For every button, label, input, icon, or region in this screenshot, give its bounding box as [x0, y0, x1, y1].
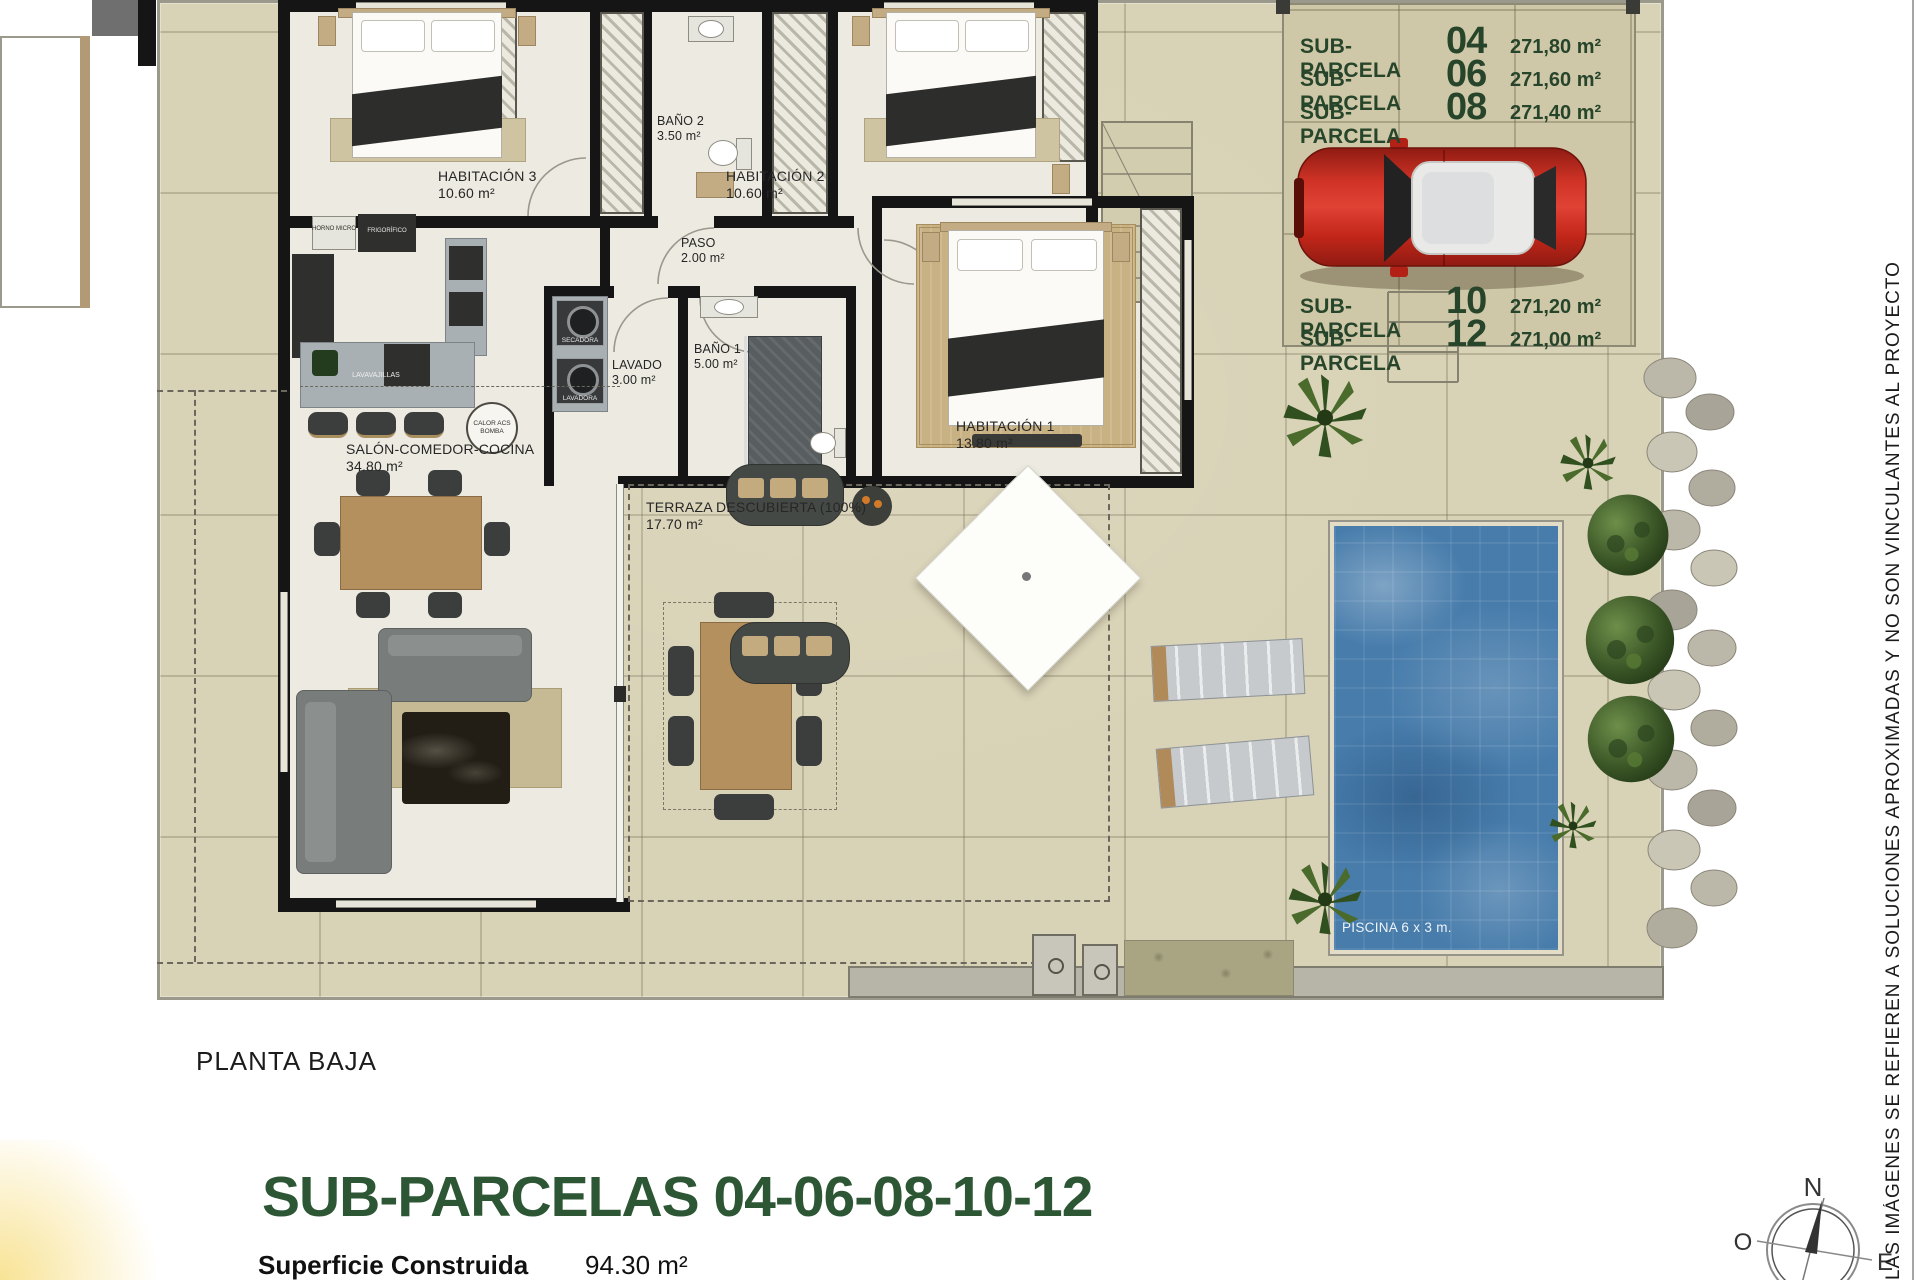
kitchen-sink: [449, 246, 483, 280]
page-title: SUB-PARCELAS 04-06-08-10-12: [262, 1164, 1092, 1230]
bar-stool: [404, 412, 444, 438]
bar-stool: [356, 412, 396, 438]
subparcela-list-top: SUB-PARCELA 04 271,80 m² SUB-PARCELA 06 …: [1300, 20, 1601, 119]
disclaimer-text: LAS IMÁGENES SE REFIEREN A SOLUCIONES AP…: [1874, 0, 1914, 1280]
nightstand: [1052, 164, 1070, 194]
outdoor-chair: [668, 646, 694, 696]
fridge-label: FRIGORÍFICO: [358, 228, 416, 235]
cushion: [806, 636, 832, 656]
washer-label: LAVADORA: [556, 395, 604, 402]
compass-north-label: N: [1804, 1172, 1823, 1202]
compass-west-label: O: [1734, 1229, 1753, 1256]
cushion: [770, 478, 796, 498]
bed-habitacion1: [948, 230, 1104, 426]
room-area: 34.80 m²: [346, 458, 534, 475]
subparcela-row: SUB-PARCELA 04 271,80 m²: [1300, 20, 1601, 53]
coffee-table: [402, 712, 510, 804]
nightstand: [318, 16, 336, 46]
tree: [1584, 491, 1672, 579]
grass-tuft: [1283, 856, 1367, 940]
cooktop: [384, 344, 430, 386]
bar-stool: [308, 412, 348, 438]
dining-chair: [314, 522, 340, 556]
room-label-paso: PASO 2.00 m²: [681, 236, 725, 266]
room-name: LAVADO: [612, 358, 662, 373]
shower-glass: [744, 336, 747, 472]
subparcela-label: SUB-PARCELA: [1300, 101, 1442, 149]
nightstand: [922, 232, 940, 262]
subparcela-row: SUB-PARCELA 10 271,20 m²: [1300, 280, 1601, 313]
room-area: 10.60 m²: [726, 185, 825, 202]
bathroom2-basin: [698, 20, 724, 38]
island-plant: [312, 350, 338, 376]
sun-lounger: [1151, 638, 1306, 702]
dining-chair: [356, 592, 390, 618]
utility-box: [1082, 944, 1118, 996]
car: [1292, 126, 1592, 294]
outdoor-chair: [668, 716, 694, 766]
tree: [1584, 692, 1678, 786]
subparcela-area: 271,00 m²: [1510, 329, 1601, 352]
room-name: HABITACIÓN 1: [956, 418, 1055, 435]
subparcela-area: 271,80 m²: [1510, 36, 1601, 59]
parcel-dash: [157, 390, 287, 392]
kitchen-zone-dash: [300, 386, 620, 387]
room-area: 10.60 m²: [438, 185, 537, 202]
room-name: SALÓN-COMEDOR-COCINA: [346, 441, 534, 458]
parasol-pole: [1022, 572, 1031, 581]
nightstand: [852, 16, 870, 46]
bathroom1-basin: [714, 299, 744, 315]
room-label-salon: SALÓN-COMEDOR-COCINA 34.80 m²: [346, 441, 534, 475]
toilet-tank: [736, 138, 752, 170]
room-name: BAÑO 1: [694, 342, 741, 357]
room-label-lavado: LAVADO 3.00 m²: [612, 358, 662, 388]
drink: [874, 500, 882, 508]
room-label-habitacion3: HABITACIÓN 3 10.60 m²: [438, 168, 537, 202]
dining-chair: [428, 592, 462, 618]
toilet-bowl: [810, 432, 836, 454]
room-area: 3.00 m²: [612, 373, 662, 388]
room-label-terraza: TERRAZA DESCUBIERTA (100%) 17.70 m²: [646, 499, 866, 533]
nightstand: [518, 16, 536, 46]
surface-label: Superficie Construida: [258, 1250, 528, 1280]
cushion: [774, 636, 800, 656]
nightstand: [1112, 232, 1130, 262]
hedge: [1124, 940, 1294, 996]
bed-habitacion3: [352, 12, 502, 158]
cushion: [738, 478, 764, 498]
room-area: 13.80 m²: [956, 435, 1055, 452]
subparcela-number: 12: [1446, 313, 1506, 356]
kitchen-sink2: [449, 292, 483, 326]
room-area: 3.50 m²: [657, 129, 704, 144]
grass-tuft: [1546, 798, 1600, 852]
room-area: 2.00 m²: [681, 251, 725, 266]
grass-tuft: [1556, 430, 1620, 494]
outdoor-chair: [714, 592, 774, 618]
room-name: BAÑO 2: [657, 114, 704, 129]
toilet-bowl: [708, 140, 738, 166]
heat-pump-label-2: BOMBA: [480, 428, 503, 436]
page-edge-line: [1912, 0, 1914, 1280]
heat-pump-label-1: CALOR ACS: [473, 420, 510, 428]
room-name: TERRAZA DESCUBIERTA (100%): [646, 499, 866, 516]
room-name: HABITACIÓN 2: [726, 168, 825, 185]
outdoor-chair: [796, 716, 822, 766]
utility-box: [1032, 934, 1076, 996]
dining-table: [340, 496, 482, 590]
room-name: PASO: [681, 236, 725, 251]
room-label-bano2: BAÑO 2 3.50 m²: [657, 114, 704, 144]
room-area: 5.00 m²: [694, 357, 741, 372]
surface-value: 94.30 m²: [585, 1250, 688, 1280]
oven-micro-unit: [312, 216, 356, 250]
corner-glow: [0, 1140, 170, 1280]
room-label-bano1: BAÑO 1 5.00 m²: [694, 342, 741, 372]
room-label-habitacion2: HABITACIÓN 2 10.60 m²: [726, 168, 825, 202]
subparcela-number: 08: [1446, 86, 1506, 129]
dryer-label: SECADORA: [556, 337, 604, 344]
plan-name: PLANTA BAJA: [196, 1046, 377, 1077]
floor-plan-page: SECADORA LAVADORA CALOR ACS BOMBA HORNO …: [0, 0, 1920, 1280]
tree: [1582, 592, 1678, 688]
subparcela-label: SUB-PARCELA: [1300, 328, 1442, 376]
subparcela-area: 271,20 m²: [1510, 296, 1601, 319]
room-area: 17.70 m²: [646, 516, 866, 533]
cushion: [742, 636, 768, 656]
oven-micro-label: HORNO MICRO: [312, 226, 356, 233]
sofa: [296, 690, 392, 874]
outdoor-chair: [714, 794, 774, 820]
grass-tuft: [1277, 368, 1373, 464]
bed-habitacion2: [886, 12, 1036, 158]
subparcela-list-bottom: SUB-PARCELA 10 271,20 m² SUB-PARCELA 12 …: [1300, 280, 1601, 346]
cushion: [802, 478, 828, 498]
subparcela-area: 271,40 m²: [1510, 102, 1601, 125]
parcel-dash: [157, 962, 1037, 964]
room-name: HABITACIÓN 3: [438, 168, 537, 185]
subparcela-area: 271,60 m²: [1510, 69, 1601, 92]
sofa: [378, 628, 532, 702]
room-label-habitacion1: HABITACIÓN 1 13.80 m²: [956, 418, 1055, 452]
parcel-dash: [194, 390, 196, 962]
shower: [748, 336, 822, 472]
dishwasher-label: LAVAVAJILLAS: [336, 372, 416, 380]
dining-chair: [484, 522, 510, 556]
